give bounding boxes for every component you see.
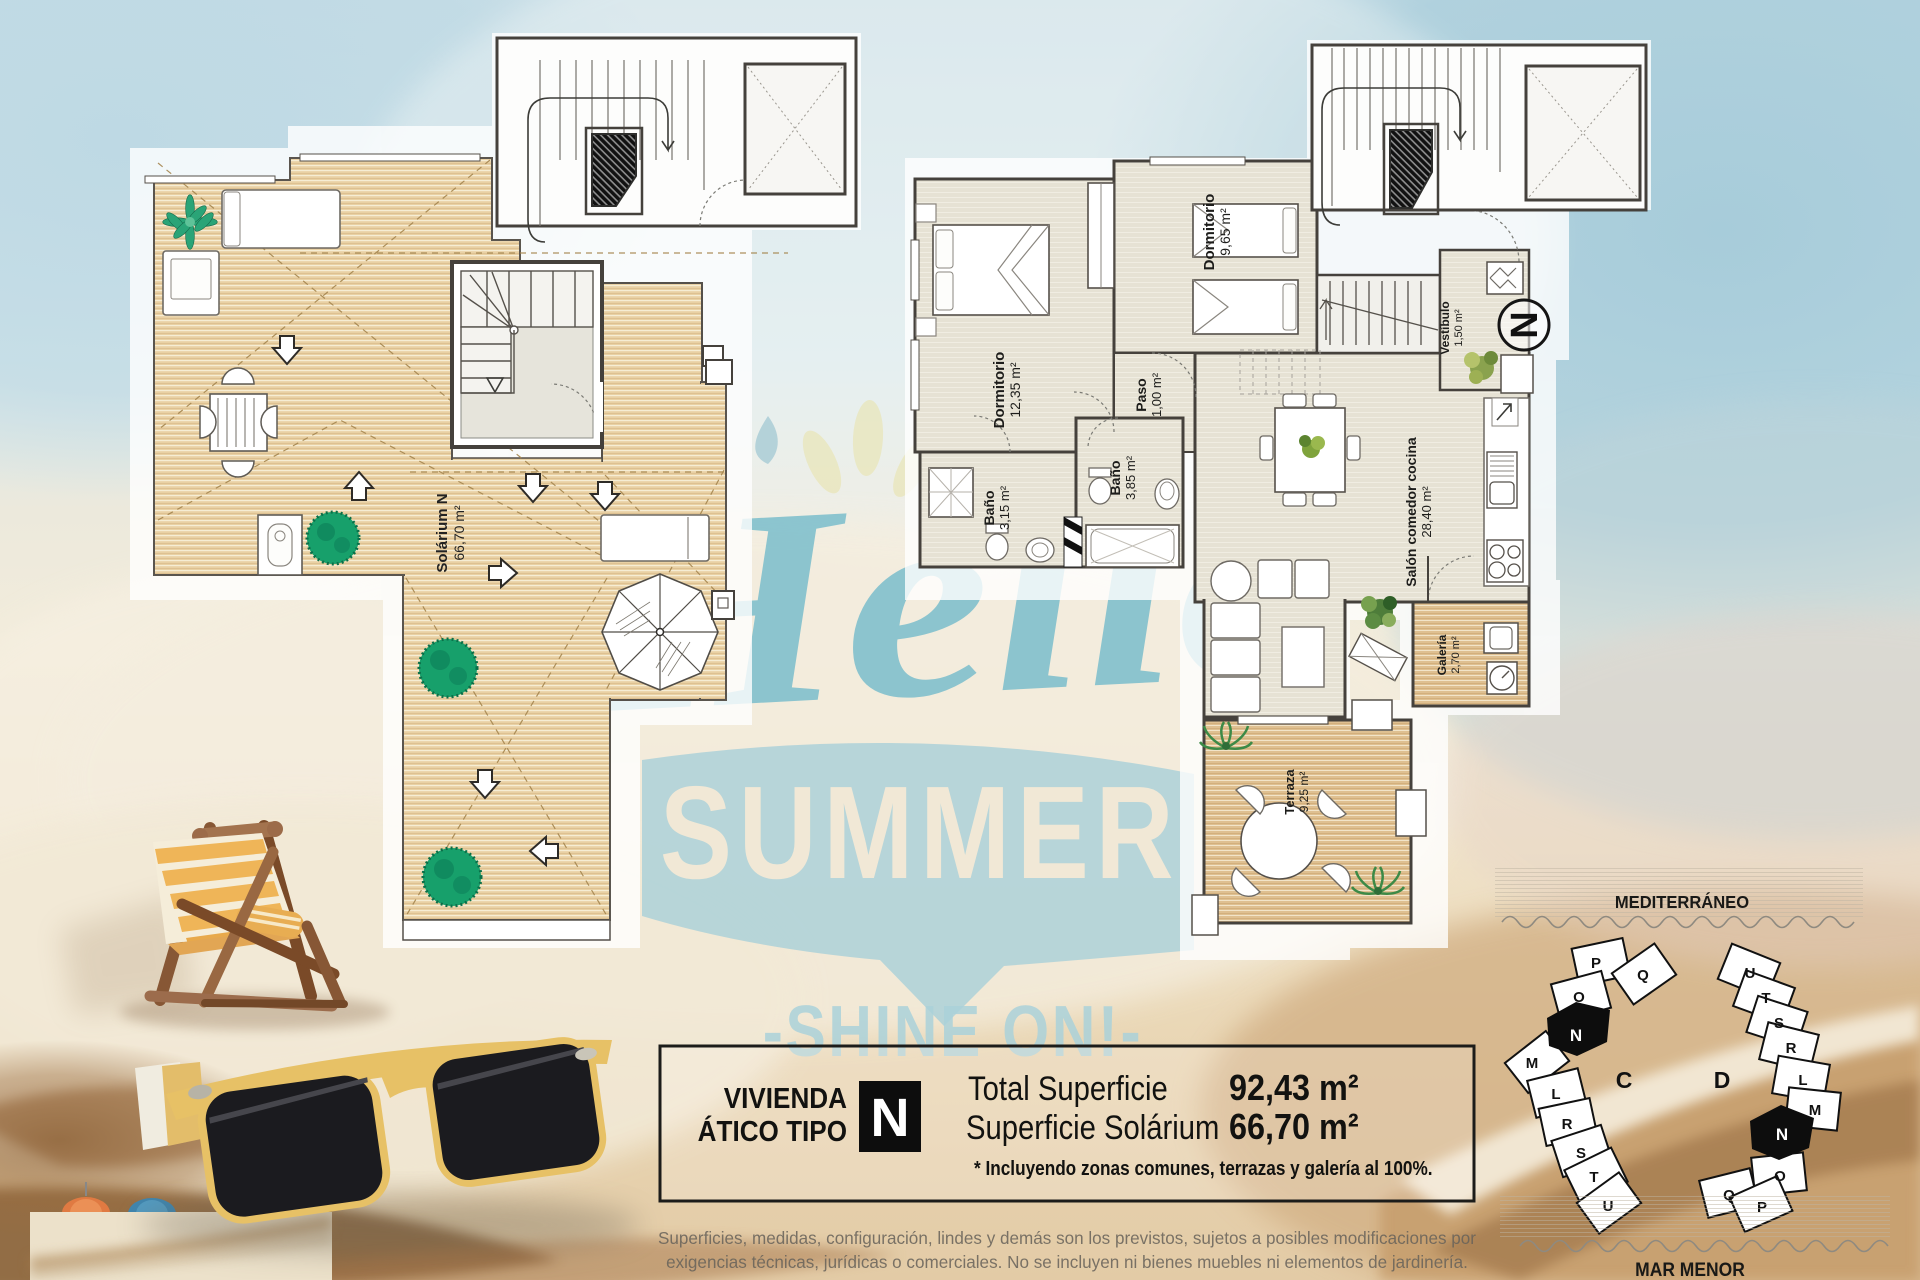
svg-text:O: O bbox=[1573, 989, 1585, 1006]
svg-text:Salón comedor cocina: Salón comedor cocina bbox=[1403, 437, 1419, 587]
svg-text:D: D bbox=[1714, 1067, 1731, 1093]
svg-text:P: P bbox=[1591, 955, 1601, 972]
svg-text:M: M bbox=[1526, 1055, 1539, 1072]
svg-text:Dormitorio: Dormitorio bbox=[991, 352, 1008, 429]
svg-text:1,00 m²: 1,00 m² bbox=[1149, 372, 1164, 417]
svg-text:Baño: Baño bbox=[981, 491, 997, 526]
svg-text:S: S bbox=[1774, 1015, 1784, 1032]
svg-text:MAR MENOR: MAR MENOR bbox=[1635, 1258, 1745, 1280]
svg-text:Paso: Paso bbox=[1133, 378, 1149, 411]
svg-text:MEDITERRÁNEO: MEDITERRÁNEO bbox=[1615, 891, 1749, 912]
svg-text:9,25 m²: 9,25 m² bbox=[1297, 772, 1311, 813]
svg-text:O: O bbox=[1774, 1168, 1786, 1185]
svg-text:N: N bbox=[1570, 1026, 1582, 1045]
svg-text:Q: Q bbox=[1637, 967, 1649, 984]
svg-text:28,40 m²: 28,40 m² bbox=[1419, 486, 1434, 538]
svg-text:3,85 m²: 3,85 m² bbox=[1123, 455, 1138, 500]
svg-text:66,70 m²: 66,70 m² bbox=[451, 505, 467, 561]
svg-text:S: S bbox=[1576, 1145, 1586, 1162]
svg-text:Superficies, medidas, configur: Superficies, medidas, configuración, lin… bbox=[658, 1228, 1476, 1249]
svg-text:1,50 m²: 1,50 m² bbox=[1453, 309, 1465, 347]
svg-text:VIVIENDA: VIVIENDA bbox=[724, 1082, 847, 1115]
svg-text:N: N bbox=[871, 1088, 910, 1148]
svg-text:Solárium N: Solárium N bbox=[434, 493, 451, 572]
svg-text:L: L bbox=[1551, 1086, 1560, 1103]
svg-text:12,35 m²: 12,35 m² bbox=[1007, 362, 1023, 418]
svg-text:Baño: Baño bbox=[1107, 461, 1123, 496]
svg-text:R: R bbox=[1786, 1040, 1797, 1057]
svg-text:N: N bbox=[1504, 311, 1546, 338]
svg-text:Vestíbulo: Vestíbulo bbox=[1438, 301, 1452, 354]
svg-text:3,15 m²: 3,15 m² bbox=[997, 485, 1012, 530]
svg-text:R: R bbox=[1562, 1116, 1573, 1133]
svg-text:Galería: Galería bbox=[1435, 634, 1449, 675]
svg-text:* Incluyendo zonas comunes, te: * Incluyendo zonas comunes, terrazas y g… bbox=[974, 1157, 1433, 1180]
svg-text:L: L bbox=[1798, 1072, 1807, 1089]
svg-text:92,43 m²: 92,43 m² bbox=[1229, 1068, 1359, 1108]
svg-text:C: C bbox=[1616, 1067, 1633, 1093]
svg-text:66,70 m²: 66,70 m² bbox=[1229, 1107, 1359, 1147]
svg-text:ÁTICO TIPO: ÁTICO TIPO bbox=[698, 1115, 847, 1148]
svg-text:Total Superficie: Total Superficie bbox=[968, 1069, 1168, 1108]
svg-text:T: T bbox=[1761, 990, 1770, 1007]
svg-text:9,65 m²: 9,65 m² bbox=[1217, 208, 1233, 256]
svg-text:SUMMER: SUMMER bbox=[660, 759, 1180, 907]
svg-text:Superficie Solárium: Superficie Solárium bbox=[966, 1108, 1219, 1147]
svg-text:M: M bbox=[1809, 1102, 1822, 1119]
svg-text:T: T bbox=[1589, 1169, 1598, 1186]
svg-text:2,70 m²: 2,70 m² bbox=[1450, 636, 1462, 674]
svg-text:Dormitorio: Dormitorio bbox=[1201, 194, 1218, 271]
svg-text:exigencias técnicas, jurídicas: exigencias técnicas, jurídicas o comerci… bbox=[666, 1252, 1468, 1273]
svg-text:U: U bbox=[1745, 965, 1756, 982]
svg-text:N: N bbox=[1776, 1125, 1788, 1144]
svg-text:Terraza: Terraza bbox=[1282, 769, 1297, 815]
